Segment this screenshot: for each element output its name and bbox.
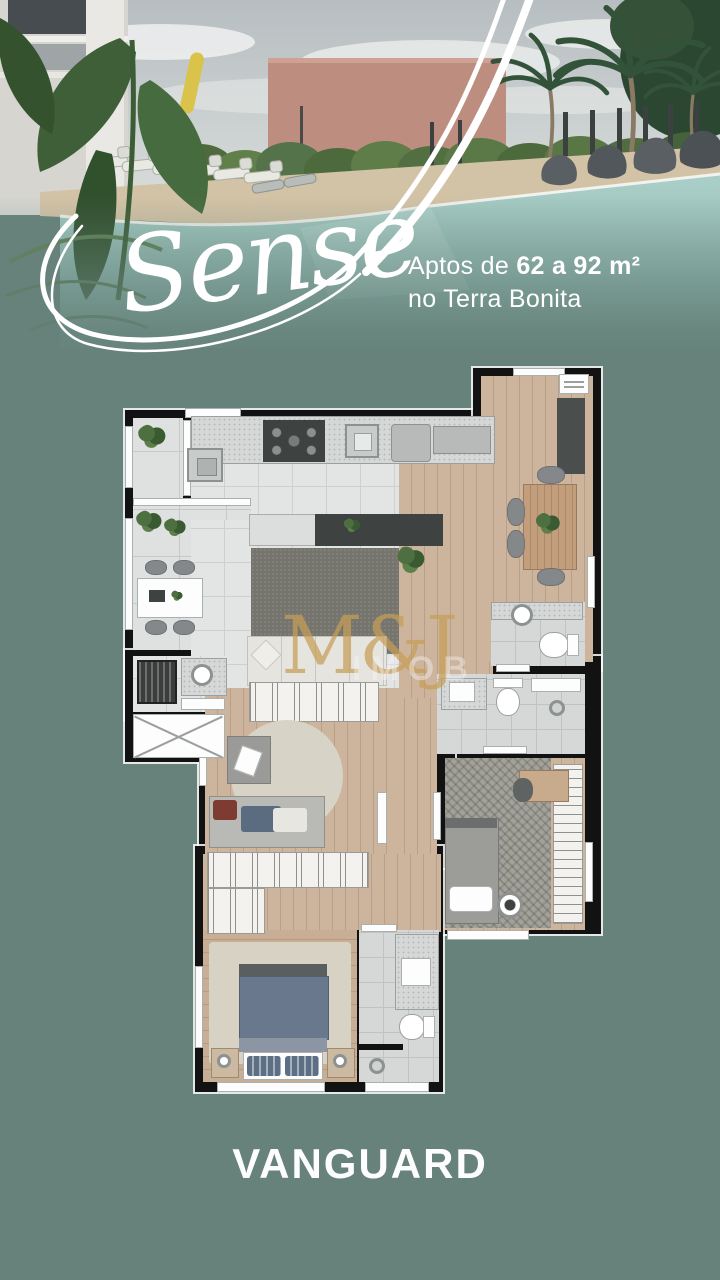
tagline-range: 62 a 92 m² xyxy=(516,252,640,280)
dining-chair-top xyxy=(537,466,565,484)
window-bedroom2-right xyxy=(585,842,593,902)
hero-photo: Sense xyxy=(0,0,720,380)
bedroom2-desk-chair xyxy=(513,778,533,802)
master-bath-toilet-tank xyxy=(423,1016,435,1038)
service-sink xyxy=(187,448,223,482)
balcony-plant xyxy=(137,424,167,448)
watermark-suffix: IMOB xyxy=(352,650,477,689)
master-bed-blanket xyxy=(239,976,329,1040)
bathroom-shelf xyxy=(531,678,581,692)
lavabo-toilet xyxy=(539,632,569,658)
dining-cabinet xyxy=(557,398,585,474)
lamp-right xyxy=(333,1054,347,1068)
bedroom2-pouf xyxy=(497,892,523,918)
island-cabinet xyxy=(249,514,317,546)
bedroom1-pillow-red xyxy=(213,800,237,820)
window-terrace-left xyxy=(125,518,133,630)
master-bath-halfwall xyxy=(359,1044,403,1050)
bathroom-toilet-tank xyxy=(493,678,523,688)
laundry-basin xyxy=(191,664,213,686)
dining-chair-bottom xyxy=(537,568,565,586)
bathroom-toilet xyxy=(496,688,520,716)
master-pillow-2 xyxy=(285,1056,319,1076)
terrace-table xyxy=(137,578,203,618)
terrace-plant-1 xyxy=(135,510,163,532)
terrace-table-plant xyxy=(171,590,183,601)
window-dining-top xyxy=(513,368,565,376)
island-counter xyxy=(315,514,443,546)
master-bath-sink xyxy=(401,958,431,986)
master-bed-headwall xyxy=(239,964,327,976)
master-bed-sheet xyxy=(239,1038,327,1052)
master-bath-toilet xyxy=(399,1014,425,1040)
master-shower-head xyxy=(369,1058,385,1074)
terrace-plant-2 xyxy=(163,518,187,536)
master-pillow-1 xyxy=(247,1056,281,1076)
cooktop xyxy=(263,420,325,462)
door-lavabo xyxy=(496,664,530,672)
ac-unit xyxy=(559,374,589,394)
bedroom2-pillow xyxy=(449,886,493,912)
shower-drain xyxy=(549,700,565,716)
terrace-table-decor xyxy=(149,590,165,602)
window-master-bottom xyxy=(217,1082,325,1092)
door-bathroom xyxy=(483,746,527,754)
door-terrace xyxy=(133,498,251,506)
terrace-chair-1 xyxy=(145,560,167,575)
floor-plan xyxy=(121,368,605,1092)
terrace-chair-2 xyxy=(173,560,195,575)
washing-machine xyxy=(137,660,177,704)
sill-bedroom2-bottom xyxy=(447,930,529,940)
terrace-chair-3 xyxy=(145,620,167,635)
lavabo-toilet-tank xyxy=(567,634,579,656)
tagline-line1: Aptos de 62 a 92 m² xyxy=(408,250,640,283)
kitchen-appliance xyxy=(391,424,431,462)
door-bedroom1 xyxy=(377,792,387,844)
hero-tagline: Aptos de 62 a 92 m² no Terra Bonita xyxy=(408,250,640,316)
window-balcony-left xyxy=(125,426,133,488)
tagline-line2: no Terra Bonita xyxy=(408,283,640,316)
dining-table-plant xyxy=(535,512,561,534)
dining-chair-left-1 xyxy=(507,498,525,526)
island-plant xyxy=(343,518,361,532)
door-master-bath xyxy=(361,924,397,932)
lavabo-sink xyxy=(511,604,533,626)
marketing-poster: Sense Aptos de 62 a 92 m² no Terra Bonit… xyxy=(0,0,720,1280)
lamp-left xyxy=(217,1054,231,1068)
dining-chair-left-2 xyxy=(507,530,525,558)
bedroom1-throw xyxy=(273,808,307,832)
master-closet-top xyxy=(207,852,369,888)
window-master-bath-bottom xyxy=(365,1082,429,1092)
laundry-shelf xyxy=(181,698,225,710)
window-dining-right xyxy=(587,556,595,608)
master-closet-left xyxy=(207,888,265,934)
bedroom2-headboard xyxy=(445,818,497,828)
door-bedroom2 xyxy=(433,792,441,840)
duct-shaft xyxy=(133,714,225,758)
kitchen-counter-right xyxy=(433,426,491,454)
terrace-chair-4 xyxy=(173,620,195,635)
lavabo-counter xyxy=(491,602,583,620)
living-plant xyxy=(397,544,425,574)
window-master-left xyxy=(195,966,203,1048)
developer-logo: VANGUARD xyxy=(0,1140,720,1188)
kitchen-sink xyxy=(345,424,379,458)
tagline-prefix: Aptos de xyxy=(408,252,516,280)
